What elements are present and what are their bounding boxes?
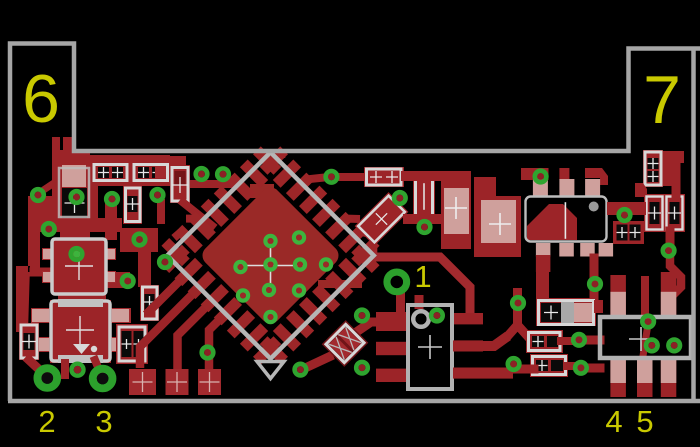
svg-text:7: 7	[643, 62, 681, 138]
svg-text:3: 3	[95, 404, 112, 439]
svg-text:6: 6	[22, 61, 60, 137]
svg-text:4: 4	[605, 404, 622, 439]
svg-text:1: 1	[414, 259, 431, 294]
svg-text:2: 2	[38, 404, 55, 439]
svg-text:5: 5	[636, 404, 653, 439]
